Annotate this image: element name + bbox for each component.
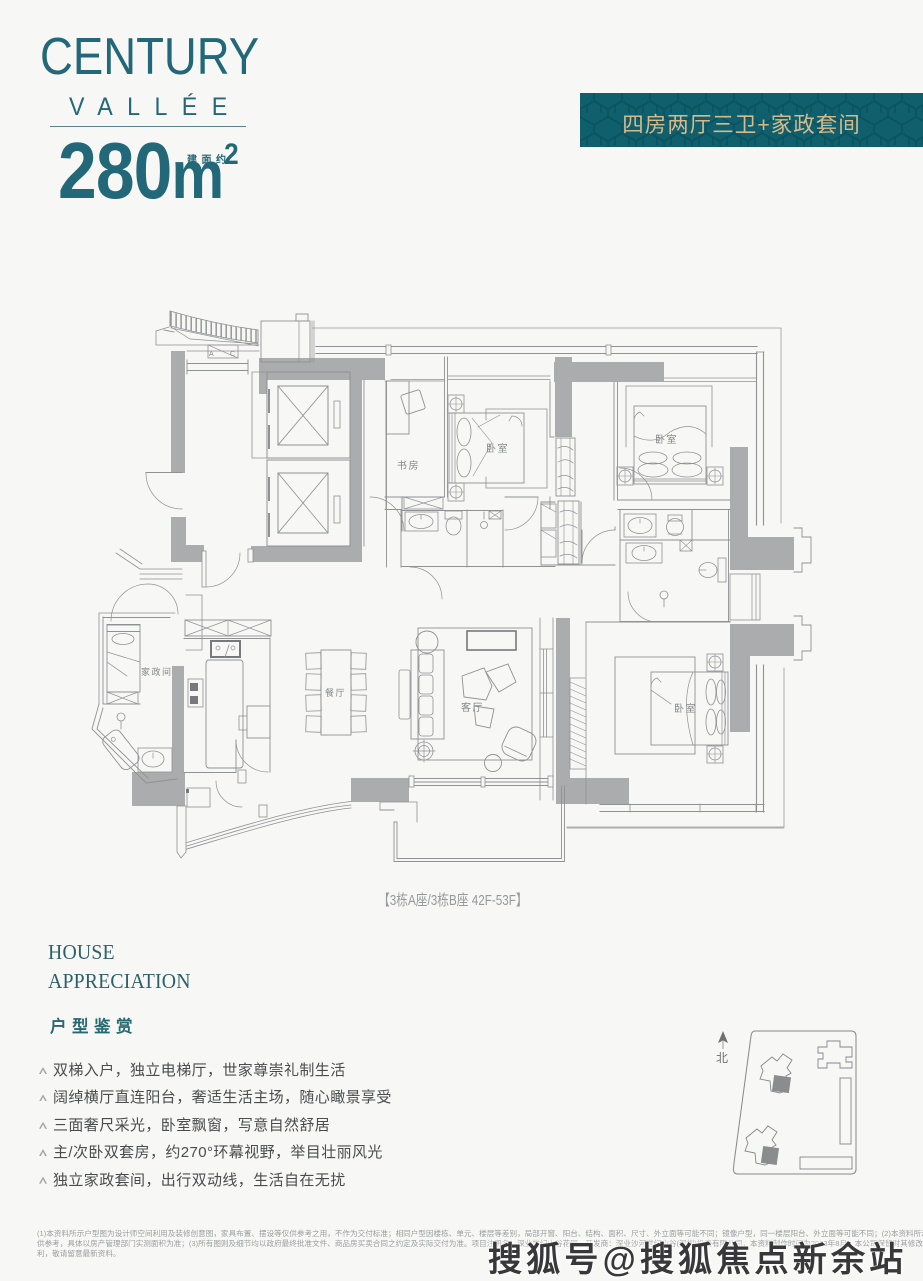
svg-text:卧室: 卧室 bbox=[674, 702, 697, 715]
svg-text:家政间: 家政间 bbox=[141, 666, 173, 677]
svg-text:客厅: 客厅 bbox=[461, 701, 484, 714]
svg-text:A: A bbox=[209, 351, 214, 358]
svg-text:卧室: 卧室 bbox=[486, 442, 509, 455]
svg-text:北: 北 bbox=[716, 1051, 728, 1065]
svg-text:餐厅: 餐厅 bbox=[325, 687, 346, 698]
svg-text:C: C bbox=[230, 351, 235, 358]
svg-text:卧室: 卧室 bbox=[655, 433, 678, 446]
svg-text:书房: 书房 bbox=[397, 459, 420, 472]
